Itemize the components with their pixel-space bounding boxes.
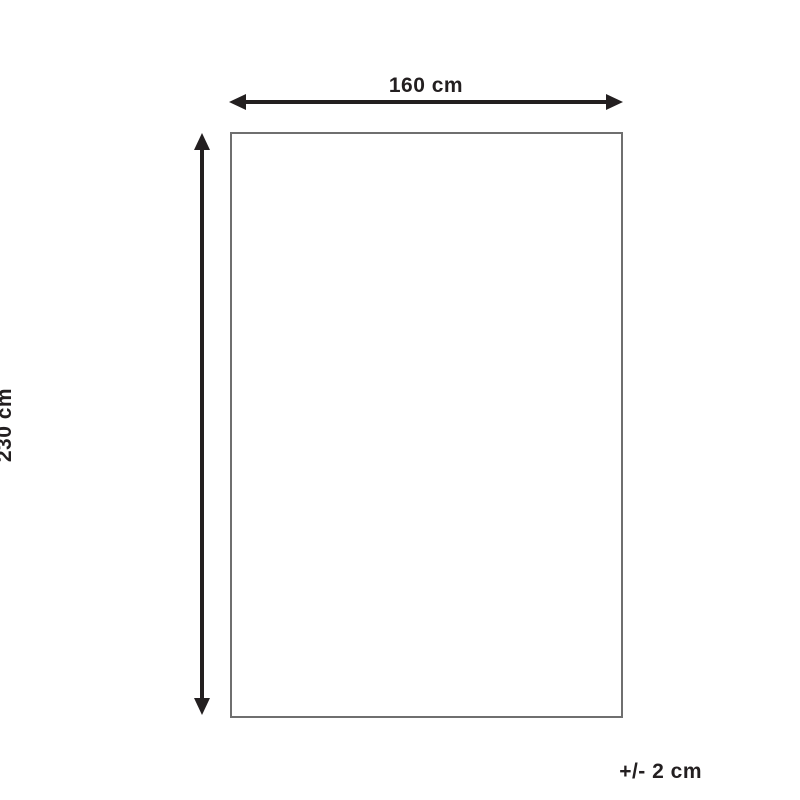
height-dimension-arrow <box>190 133 214 715</box>
width-arrow-right-head-icon <box>606 94 623 110</box>
width-dimension-arrow <box>229 90 623 114</box>
height-arrow-bottom-head-icon <box>194 698 210 715</box>
height-dimension-label: 230 cm <box>0 325 17 525</box>
height-arrow-top-head-icon <box>194 133 210 150</box>
product-outline-rectangle <box>230 132 623 718</box>
tolerance-label: +/- 2 cm <box>619 760 702 784</box>
dimension-diagram: 160 cm 230 cm +/- 2 cm <box>0 0 800 800</box>
width-arrow-left-head-icon <box>229 94 246 110</box>
